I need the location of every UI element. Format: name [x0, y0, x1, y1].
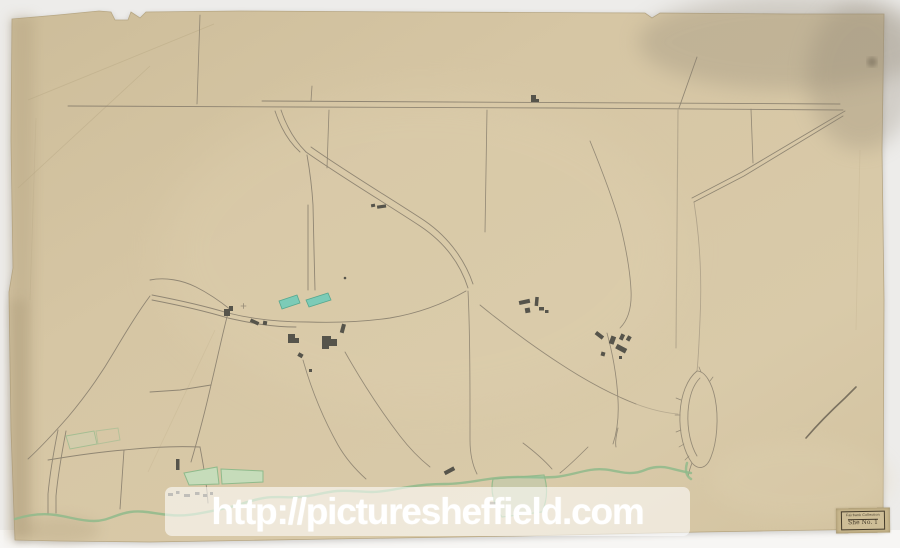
- watermark-band: http://picturesheffield.com: [165, 487, 690, 536]
- archive-reference-stamp: Fairbank Collection She No. 1: [836, 508, 890, 534]
- stamp-label-box: Fairbank Collection She No. 1: [841, 511, 885, 531]
- map-scan-artwork: [0, 0, 900, 548]
- watermark-url-text: http://picturesheffield.com: [211, 491, 643, 533]
- stamp-line2: She No. 1: [848, 518, 878, 527]
- scanned-map-page: http://picturesheffield.com Fairbank Col…: [0, 0, 900, 548]
- meadow-wedge: [221, 469, 263, 484]
